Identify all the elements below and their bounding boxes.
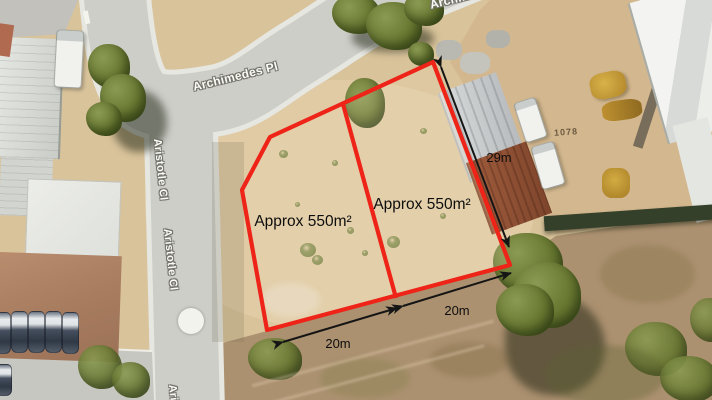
width-label-left: 20m xyxy=(325,336,350,351)
aerial-lot-photo: Archimedes Pl Archimedes Aristotle Cl Ar… xyxy=(0,0,712,400)
depth-label: 29m xyxy=(486,150,511,165)
width-label-right: 20m xyxy=(444,303,469,318)
area-label-left: Approx 550m² xyxy=(254,213,351,230)
annotation-layer: Approx 550m² Approx 550m² 29m 20m 20m xyxy=(0,0,712,400)
area-label-right: Approx 550m² xyxy=(373,196,470,213)
